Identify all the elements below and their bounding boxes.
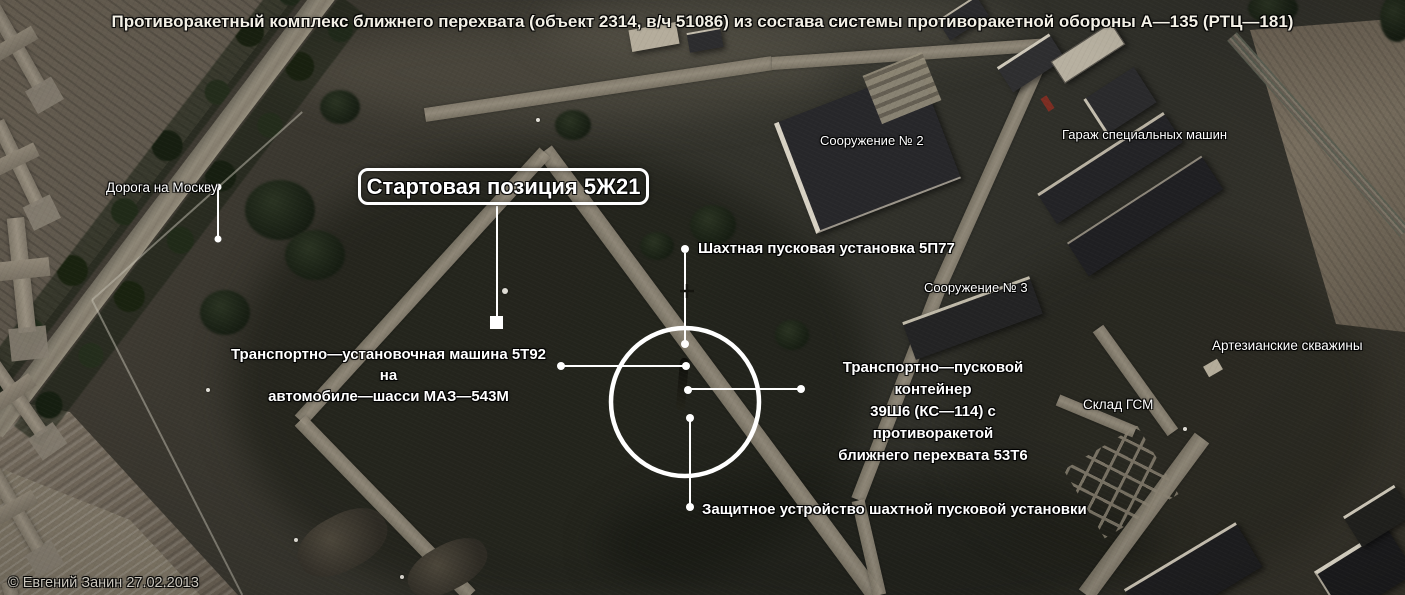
- bright-spot: [206, 388, 210, 392]
- label-building-3: Сооружение № 3: [924, 277, 1028, 298]
- bright-spot: [400, 575, 404, 579]
- annotated-satellite-image: Противоракетный комплекс ближнего перехв…: [0, 0, 1405, 595]
- tree-clump: [320, 90, 360, 124]
- pad-shape: [0, 257, 50, 282]
- label-transport-loader: Транспортно—установочная машина 5Т92 на …: [226, 344, 551, 407]
- label-artesian-wells: Артезианские скважины: [1212, 335, 1363, 356]
- bright-spot: [294, 538, 298, 542]
- bright-spot: [1183, 427, 1187, 431]
- tree-clump: [285, 230, 345, 280]
- tree-clump: [640, 232, 674, 260]
- callout-box-start-position: Стартовая позиция 5Ж21: [358, 168, 649, 205]
- label-building-2: Сооружение № 2: [820, 130, 924, 151]
- building: [1343, 485, 1405, 547]
- red-vehicle: [1040, 95, 1054, 111]
- label-silo-cover: Защитное устройство шахтной пусковой уст…: [702, 499, 1087, 520]
- label-launch-container: Транспортно—пусковой контейнер 39Ш6 (КС—…: [808, 357, 1058, 467]
- copyright-credit: © Евгений Занин 27.02.2013: [8, 573, 199, 594]
- bright-spot: [536, 118, 540, 122]
- label-special-garage: Гараж специальных машин: [1062, 124, 1227, 145]
- bright-spot: [502, 288, 508, 294]
- tree-clump: [200, 290, 250, 335]
- label-fuel-depot: Склад ГСМ: [1083, 394, 1153, 415]
- marker-dot: [215, 236, 222, 243]
- label-silo-launcher: Шахтная пусковая установка 5П77: [698, 238, 955, 259]
- page-title: Противоракетный комплекс ближнего перехв…: [0, 11, 1405, 32]
- tree-clump: [555, 110, 591, 140]
- label-road-to-moscow: Дорога на Москву: [106, 177, 218, 198]
- tree-clump: [775, 320, 809, 350]
